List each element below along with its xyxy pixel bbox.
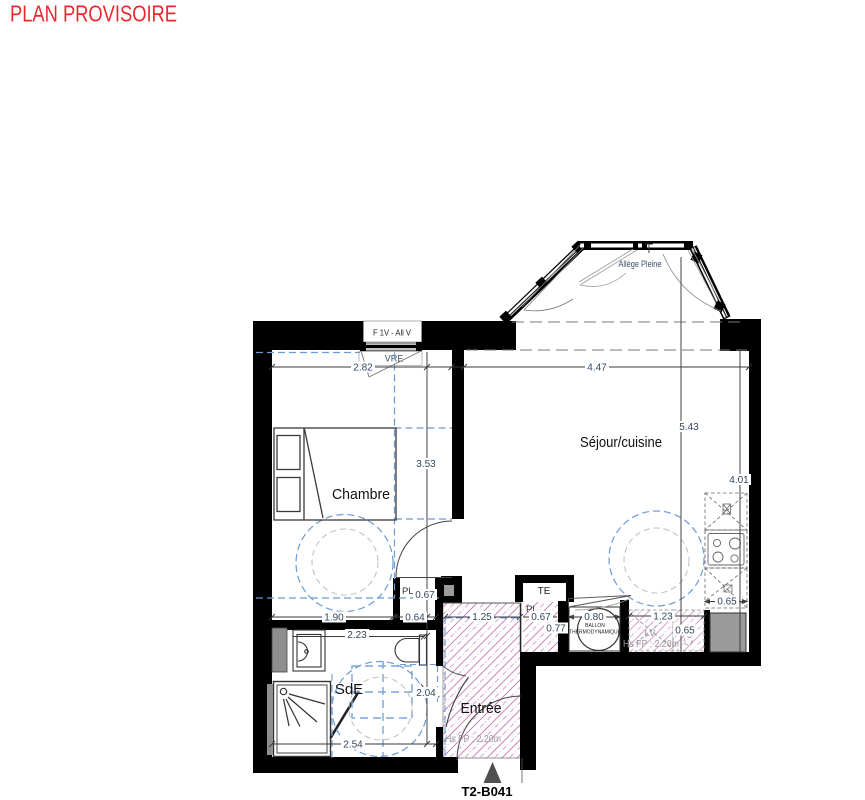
svg-text:0.67: 0.67 <box>531 612 551 623</box>
svg-text:2.54: 2.54 <box>343 740 363 751</box>
svg-text:TE: TE <box>538 586 551 597</box>
svg-text:0.67: 0.67 <box>415 590 435 601</box>
svg-text:1.25: 1.25 <box>472 612 492 623</box>
svg-text:0.80: 0.80 <box>584 612 604 623</box>
svg-text:3.53: 3.53 <box>416 459 436 470</box>
svg-text:Entrée: Entrée <box>461 700 502 717</box>
svg-text:2.23: 2.23 <box>347 630 367 641</box>
svg-text:PL: PL <box>402 586 414 597</box>
svg-text:THERMODYNAMIQUE: THERMODYNAMIQUE <box>569 630 622 636</box>
svg-text:0.65: 0.65 <box>717 597 737 608</box>
svg-text:1.90: 1.90 <box>324 613 344 624</box>
svg-text:Hs FP : 2.20m: Hs FP : 2.20m <box>623 639 679 650</box>
svg-text:2.82: 2.82 <box>353 363 373 374</box>
svg-text:Hs FP : 2.20m: Hs FP : 2.20m <box>445 734 501 745</box>
svg-text:Chambre: Chambre <box>332 486 390 503</box>
svg-text:LV: LV <box>645 628 657 639</box>
svg-text:2.04: 2.04 <box>416 688 436 699</box>
svg-text:0.77: 0.77 <box>546 624 566 635</box>
svg-text:Séjour/cuisine: Séjour/cuisine <box>580 434 662 451</box>
svg-text:4.47: 4.47 <box>587 363 607 374</box>
svg-text:T2-B041: T2-B041 <box>462 784 513 799</box>
svg-text:0.64: 0.64 <box>405 613 425 624</box>
svg-text:1.23: 1.23 <box>653 612 673 623</box>
svg-text:5.43: 5.43 <box>679 422 699 433</box>
svg-text:PLAN PROVISOIRE: PLAN PROVISOIRE <box>10 1 177 27</box>
svg-text:SdE: SdE <box>335 681 363 698</box>
svg-text:BALLON: BALLON <box>585 623 605 629</box>
svg-text:0.65: 0.65 <box>675 626 695 637</box>
svg-text:4.01: 4.01 <box>729 475 749 486</box>
svg-text:Allége Pleine: Allége Pleine <box>619 259 662 269</box>
svg-text:F 1V - All V: F 1V - All V <box>373 328 411 338</box>
